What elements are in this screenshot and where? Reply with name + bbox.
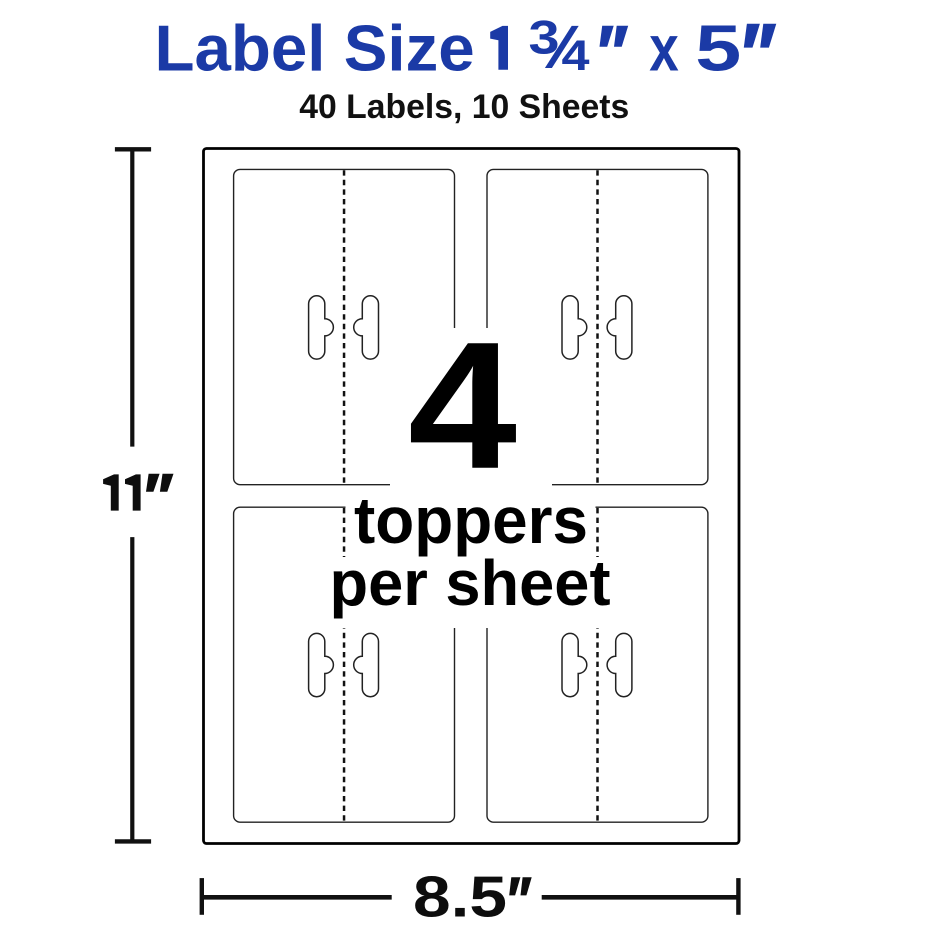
svg-text:5: 5	[695, 11, 741, 84]
svg-text:40 Labels, 10 Sheets: 40 Labels, 10 Sheets	[299, 88, 629, 126]
svg-text:per sheet: per sheet	[330, 547, 611, 619]
svg-text:Label Size: Label Size	[155, 11, 475, 84]
svg-text:x: x	[649, 11, 679, 84]
svg-text:4: 4	[562, 32, 590, 80]
svg-text:4: 4	[408, 305, 517, 507]
svg-text:8.5: 8.5	[413, 866, 507, 930]
